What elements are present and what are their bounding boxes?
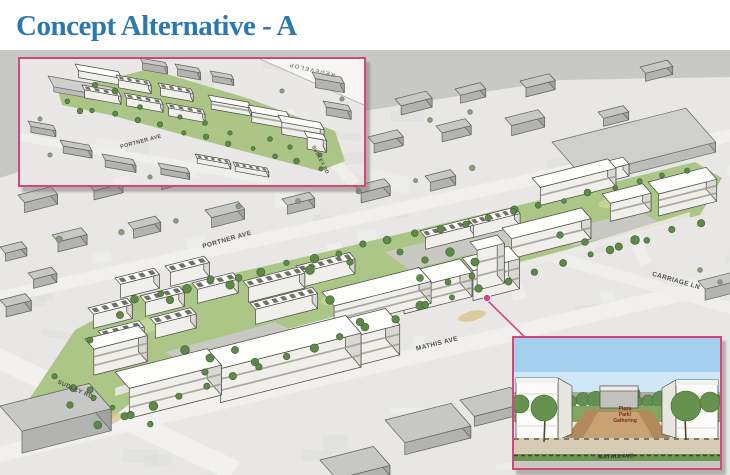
callout-marker-icon <box>483 294 490 301</box>
plaza-label-line3: Gathering <box>613 418 637 424</box>
inset-aerial-overview: PORTNER AVE SUDLEY RD REDEVELOP <box>18 57 366 187</box>
inset-street-label-mathis-ave: MATHIS AVE <box>598 453 634 460</box>
page-title: Concept Alternative - A <box>16 10 297 43</box>
inset-street-view-graphic <box>514 338 720 468</box>
inset-street-view: Plaza Park/ Gathering MATHIS AVE <box>512 336 722 470</box>
aerial-rendering: PORTNER AVE CARRIAGE LN MATHIS AVE SUDLE… <box>0 50 730 475</box>
inset-overview-graphic <box>20 59 364 185</box>
plaza-park-gathering-label: Plaza Park/ Gathering <box>613 406 637 424</box>
slide-canvas: Concept Alternative - A PORTNER AVE CARR… <box>0 0 730 475</box>
